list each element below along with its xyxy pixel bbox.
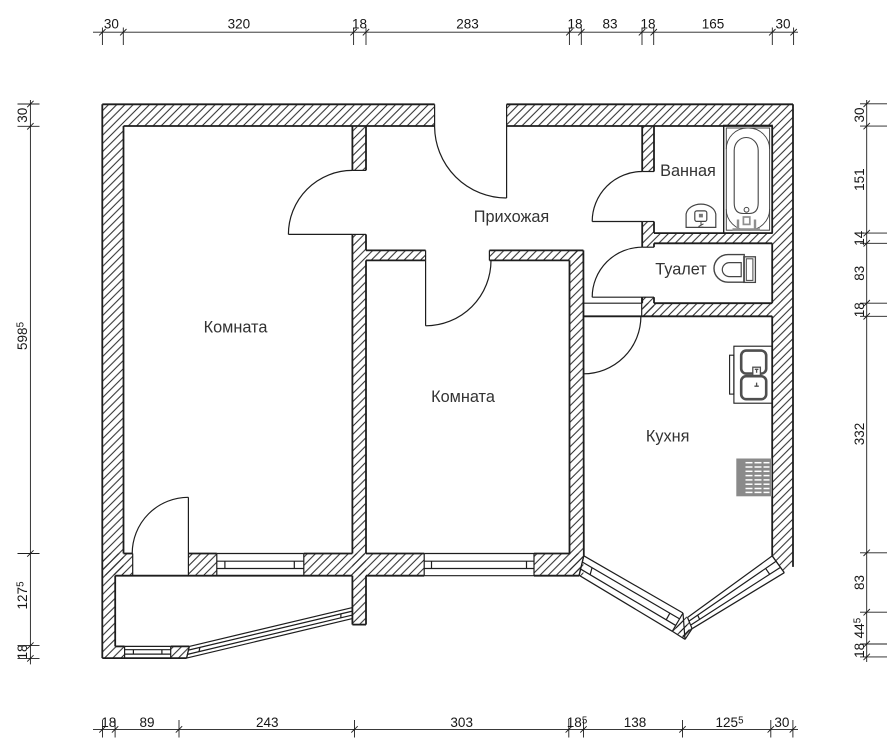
svg-text:Комната: Комната	[204, 319, 269, 337]
svg-text:83: 83	[602, 17, 617, 32]
svg-text:Ванная: Ванная	[660, 162, 716, 180]
svg-text:18: 18	[640, 17, 655, 32]
svg-text:320: 320	[228, 17, 251, 32]
svg-text:18: 18	[567, 17, 582, 32]
svg-text:30: 30	[104, 17, 119, 32]
svg-text:30: 30	[775, 17, 790, 32]
svg-text:18: 18	[852, 302, 867, 317]
svg-text:Прихожая: Прихожая	[474, 208, 549, 226]
svg-text:Туалет: Туалет	[655, 261, 707, 279]
svg-text:14: 14	[852, 230, 867, 246]
svg-text:303: 303	[450, 715, 473, 730]
svg-text:18: 18	[852, 643, 867, 658]
svg-text:89: 89	[139, 715, 154, 730]
svg-text:83: 83	[852, 266, 867, 281]
svg-text:30: 30	[15, 108, 30, 123]
svg-text:151: 151	[852, 168, 867, 191]
svg-text:Комната: Комната	[431, 388, 496, 406]
svg-text:283: 283	[456, 17, 479, 32]
svg-text:Кухня: Кухня	[646, 427, 690, 445]
svg-text:243: 243	[256, 715, 279, 730]
svg-text:30: 30	[774, 715, 789, 730]
svg-text:18: 18	[15, 644, 30, 659]
svg-text:18: 18	[352, 17, 367, 32]
svg-text:165: 165	[702, 17, 725, 32]
svg-text:138: 138	[624, 715, 647, 730]
svg-text:18: 18	[101, 715, 116, 730]
svg-text:30: 30	[852, 107, 867, 122]
svg-text:83: 83	[852, 575, 867, 590]
svg-text:332: 332	[852, 423, 867, 446]
